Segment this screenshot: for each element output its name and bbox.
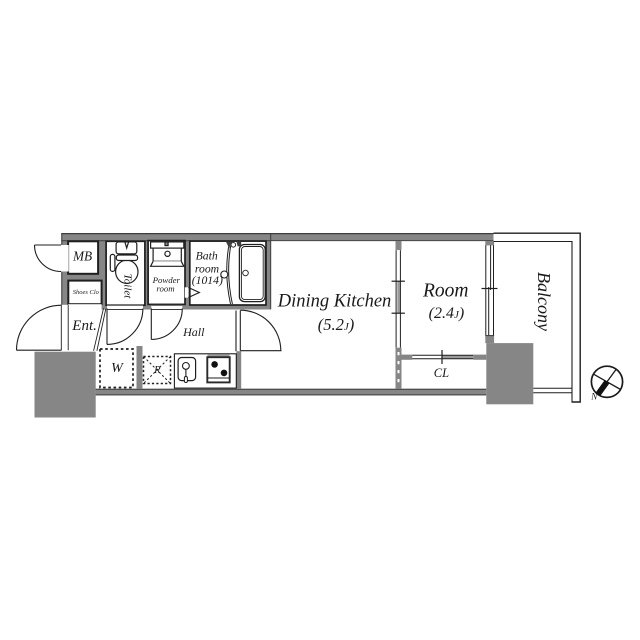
svg-text:R: R <box>153 365 161 376</box>
svg-text:MB: MB <box>72 249 92 264</box>
svg-text:Hall: Hall <box>182 325 205 339</box>
svg-text:Shoes Clo: Shoes Clo <box>73 289 100 296</box>
svg-text:(5.2J): (5.2J) <box>318 315 355 334</box>
svg-text:(1014): (1014) <box>192 274 223 287</box>
svg-text:W: W <box>111 361 124 376</box>
svg-text:Room: Room <box>422 281 469 302</box>
svg-text:Bath: Bath <box>196 250 218 263</box>
svg-text:N: N <box>590 392 598 402</box>
svg-text:Balcony: Balcony <box>534 272 554 331</box>
svg-text:(2.4J): (2.4J) <box>429 305 465 322</box>
svg-text:Ent.: Ent. <box>71 318 97 334</box>
svg-text:room: room <box>156 284 174 294</box>
svg-text:Toilet: Toilet <box>122 274 134 300</box>
svg-text:CL: CL <box>434 366 449 380</box>
svg-text:Dining Kitchen: Dining Kitchen <box>277 291 392 311</box>
